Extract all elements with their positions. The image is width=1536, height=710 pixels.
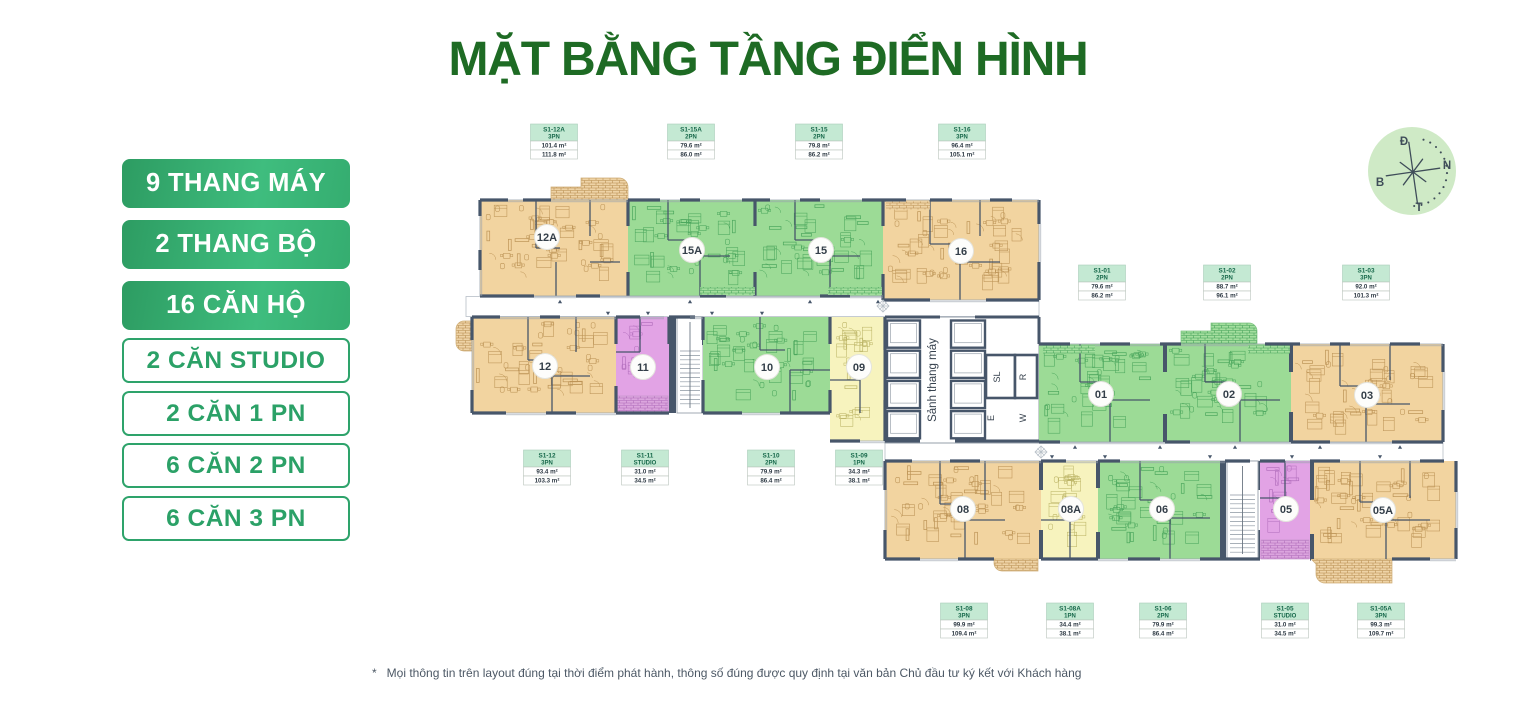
svg-text:34.5 m²: 34.5 m² xyxy=(1274,631,1295,638)
svg-text:96.4 m²: 96.4 m² xyxy=(951,143,972,150)
svg-text:15A: 15A xyxy=(682,245,702,257)
svg-text:34.4 m²: 34.4 m² xyxy=(1059,622,1080,629)
svg-text:S1-06: S1-06 xyxy=(1154,606,1171,613)
svg-text:05: 05 xyxy=(1280,504,1292,516)
svg-text:2PN: 2PN xyxy=(813,135,825,141)
svg-text:31.0 m²: 31.0 m² xyxy=(1274,622,1295,629)
svg-text:3PN: 3PN xyxy=(1360,276,1372,282)
svg-text:11: 11 xyxy=(637,362,649,374)
svg-text:Đ: Đ xyxy=(1400,136,1408,148)
svg-text:S1-02: S1-02 xyxy=(1218,268,1235,275)
svg-text:3PN: 3PN xyxy=(1375,614,1387,620)
svg-text:38.1 m²: 38.1 m² xyxy=(1059,631,1080,638)
svg-text:Sảnh thang máy: Sảnh thang máy xyxy=(927,338,939,422)
svg-text:S1-12A: S1-12A xyxy=(543,127,565,134)
svg-text:01: 01 xyxy=(1095,389,1107,401)
svg-text:2PN: 2PN xyxy=(765,461,777,467)
svg-text:12: 12 xyxy=(539,361,551,373)
svg-text:E: E xyxy=(986,415,996,421)
svg-text:3PN: 3PN xyxy=(956,135,968,141)
svg-text:34.3 m²: 34.3 m² xyxy=(848,469,869,476)
svg-text:79.8 m²: 79.8 m² xyxy=(808,143,829,150)
svg-text:S1-08A: S1-08A xyxy=(1059,606,1081,613)
svg-text:W: W xyxy=(1018,413,1028,422)
svg-text:2PN: 2PN xyxy=(1157,614,1169,620)
svg-text:S1-03: S1-03 xyxy=(1357,268,1374,275)
svg-text:96.1 m²: 96.1 m² xyxy=(1216,293,1237,300)
svg-text:S1-08: S1-08 xyxy=(955,606,972,613)
svg-text:S1-01: S1-01 xyxy=(1093,268,1110,275)
svg-text:38.1 m²: 38.1 m² xyxy=(848,478,869,485)
svg-text:86.2 m²: 86.2 m² xyxy=(808,152,829,159)
svg-text:S1-11: S1-11 xyxy=(637,453,654,460)
svg-text:08A: 08A xyxy=(1061,504,1081,516)
svg-text:99.3 m²: 99.3 m² xyxy=(1370,622,1391,629)
svg-text:109.7 m²: 109.7 m² xyxy=(1369,631,1394,638)
svg-text:103.3 m²: 103.3 m² xyxy=(535,478,560,485)
svg-text:2PN: 2PN xyxy=(685,135,697,141)
svg-text:S1-05A: S1-05A xyxy=(1370,606,1392,613)
svg-text:2PN: 2PN xyxy=(1221,276,1233,282)
svg-text:3PN: 3PN xyxy=(541,461,553,467)
svg-text:12A: 12A xyxy=(537,232,557,244)
svg-text:93.4 m²: 93.4 m² xyxy=(536,469,557,476)
svg-text:79.9 m²: 79.9 m² xyxy=(760,469,781,476)
svg-text:T: T xyxy=(1415,202,1422,214)
svg-text:02: 02 xyxy=(1223,389,1235,401)
svg-text:86.2 m²: 86.2 m² xyxy=(1091,293,1112,300)
svg-text:B: B xyxy=(1376,177,1384,189)
svg-text:S1-16: S1-16 xyxy=(953,127,970,134)
svg-text:1PN: 1PN xyxy=(1064,614,1076,620)
svg-text:S1-15: S1-15 xyxy=(810,127,827,134)
svg-text:88.7 m²: 88.7 m² xyxy=(1216,284,1237,291)
svg-text:86.0 m²: 86.0 m² xyxy=(680,152,701,159)
svg-text:101.3 m²: 101.3 m² xyxy=(1354,293,1379,300)
svg-text:79.9 m²: 79.9 m² xyxy=(1152,622,1173,629)
svg-text:10: 10 xyxy=(761,362,773,374)
svg-text:S1-05: S1-05 xyxy=(1276,606,1293,613)
svg-text:15: 15 xyxy=(815,245,827,257)
svg-text:16: 16 xyxy=(955,246,967,258)
svg-text:06: 06 xyxy=(1156,504,1168,516)
svg-text:03: 03 xyxy=(1361,390,1373,402)
svg-text:34.5 m²: 34.5 m² xyxy=(634,478,655,485)
svg-text:101.4 m²: 101.4 m² xyxy=(542,143,567,150)
svg-text:92.0 m²: 92.0 m² xyxy=(1355,284,1376,291)
svg-text:N: N xyxy=(1443,160,1451,172)
svg-text:STUDIO: STUDIO xyxy=(1274,614,1297,620)
svg-text:86.4 m²: 86.4 m² xyxy=(1152,631,1173,638)
svg-text:99.9 m²: 99.9 m² xyxy=(953,622,974,629)
svg-text:S1-10: S1-10 xyxy=(762,453,779,460)
svg-text:31.0 m²: 31.0 m² xyxy=(634,469,655,476)
svg-text:1PN: 1PN xyxy=(853,461,865,467)
svg-text:09: 09 xyxy=(853,362,865,374)
svg-text:2PN: 2PN xyxy=(1096,276,1108,282)
svg-text:S1-15A: S1-15A xyxy=(680,127,702,134)
svg-text:05A: 05A xyxy=(1373,505,1393,517)
svg-text:111.8 m²: 111.8 m² xyxy=(542,152,566,159)
svg-text:R: R xyxy=(1018,373,1028,380)
svg-text:STUDIO: STUDIO xyxy=(634,461,657,467)
svg-text:79.6 m²: 79.6 m² xyxy=(680,143,701,150)
svg-text:105.1 m²: 105.1 m² xyxy=(950,152,975,159)
svg-text:86.4 m²: 86.4 m² xyxy=(760,478,781,485)
svg-text:08: 08 xyxy=(957,504,969,516)
svg-text:79.6 m²: 79.6 m² xyxy=(1091,284,1112,291)
svg-text:109.4 m²: 109.4 m² xyxy=(952,631,977,638)
svg-text:SL: SL xyxy=(992,371,1002,382)
svg-text:S1-09: S1-09 xyxy=(850,453,867,460)
svg-text:3PN: 3PN xyxy=(958,614,970,620)
svg-text:3PN: 3PN xyxy=(548,135,560,141)
svg-text:S1-12: S1-12 xyxy=(538,453,555,460)
